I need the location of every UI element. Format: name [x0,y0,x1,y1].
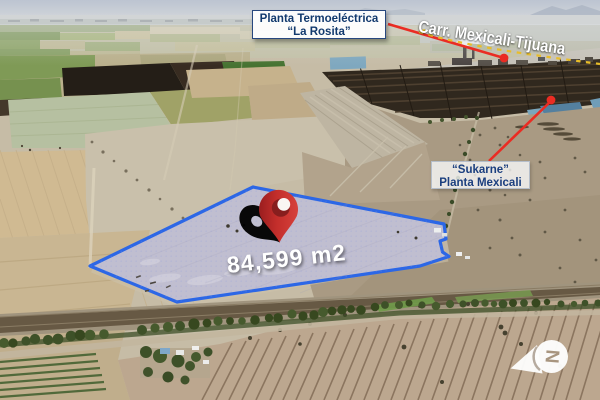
svg-text:N: N [540,349,562,365]
